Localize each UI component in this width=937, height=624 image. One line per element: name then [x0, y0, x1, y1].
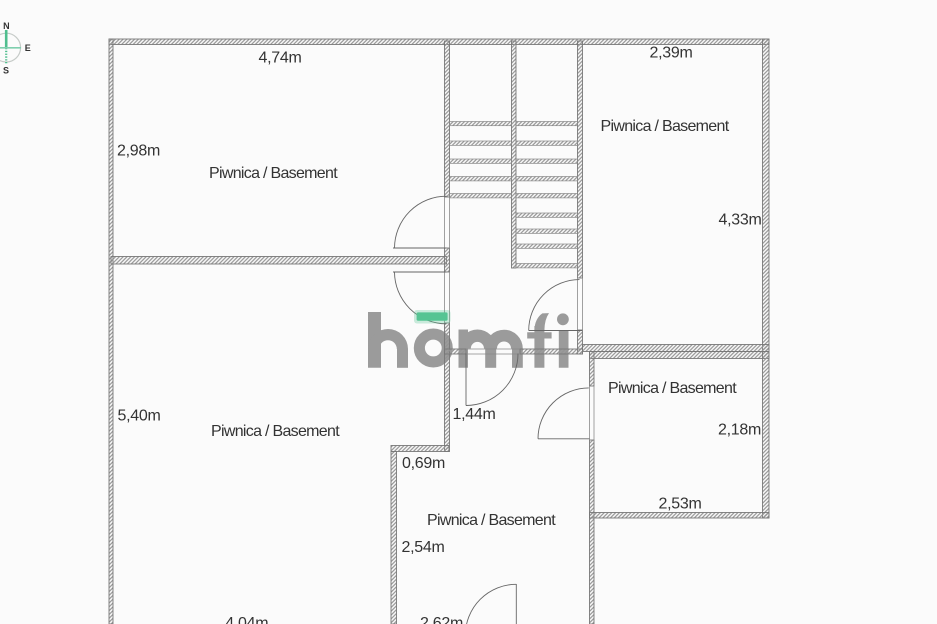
svg-text:N: N [3, 21, 10, 31]
svg-text:Piwnica / Basement: Piwnica / Basement [209, 165, 338, 182]
svg-text:Piwnica / Basement: Piwnica / Basement [211, 423, 340, 440]
svg-text:S: S [3, 66, 9, 76]
svg-text:Piwnica / Basement: Piwnica / Basement [427, 512, 556, 529]
svg-text:E: E [25, 43, 31, 53]
svg-text:4,33m: 4,33m [719, 212, 762, 229]
svg-text:Piwnica / Basement: Piwnica / Basement [601, 118, 730, 135]
svg-text:2,18m: 2,18m [718, 422, 761, 439]
svg-text:2,53m: 2,53m [659, 495, 702, 512]
svg-text:1,44m: 1,44m [453, 406, 496, 423]
svg-text:2,39m: 2,39m [650, 45, 693, 62]
svg-text:Piwnica / Basement: Piwnica / Basement [608, 380, 737, 397]
svg-text:5,40m: 5,40m [118, 408, 161, 425]
svg-text:4,04m: 4,04m [225, 615, 268, 624]
svg-text:2,62m: 2,62m [420, 615, 463, 624]
svg-text:0,69m: 0,69m [402, 455, 445, 472]
svg-text:4,74m: 4,74m [259, 50, 302, 67]
svg-text:2,98m: 2,98m [117, 143, 160, 160]
svg-text:2,54m: 2,54m [402, 539, 445, 556]
